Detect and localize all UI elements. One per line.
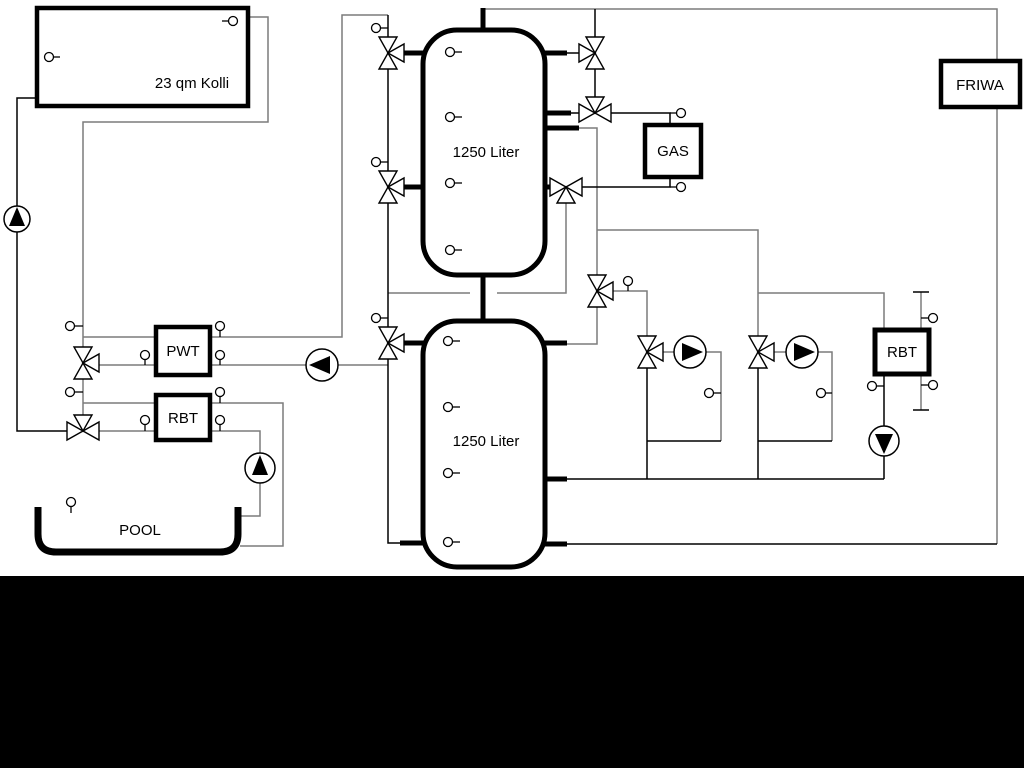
temp-sensor-pool (67, 498, 76, 514)
pipe-rbt-left-bottom-to-pump (210, 431, 260, 453)
three-way-valve-circuit1-mixer (638, 336, 663, 368)
temp-sensor-gas-supply (670, 109, 686, 118)
three-way-valve-tank1-top-right (579, 37, 604, 69)
temp-sensor-circuit2 (817, 389, 833, 398)
three-way-valve-solar-upper (74, 347, 99, 379)
three-way-valve-circuit2-mixer (749, 336, 774, 368)
rbt-left-label: RBT (168, 410, 198, 427)
temp-sensor-rbt-right-secondary-top (921, 314, 938, 323)
temp-sensor-solar-line-1 (66, 322, 84, 331)
pump-solar (4, 206, 30, 232)
temp-sensor-distribution (624, 277, 633, 292)
collector-label: 23 qm Kolli (155, 75, 229, 92)
temp-sensor-pwt-left (141, 351, 150, 366)
pipe-collector-supply-a (17, 98, 37, 206)
temp-sensor-solar-line-2 (66, 388, 84, 397)
pipe-to-rbt-right (758, 293, 884, 330)
temp-sensor-circuit1 (705, 389, 722, 398)
temp-sensor-rbt-left (141, 416, 150, 432)
bottom-black-band (0, 576, 1024, 768)
gas-label: GAS (657, 143, 689, 160)
pump-circuit2 (786, 336, 818, 368)
three-way-valve-tank1-lower-left (379, 171, 404, 203)
pwt-label: PWT (166, 343, 199, 360)
temp-sensor-pwt-right-top (216, 322, 225, 338)
temp-sensor-rbt-right-secondary-bottom (921, 381, 938, 390)
pump-rbt-right (869, 426, 899, 456)
pipe-tank1-lower-right-down (578, 128, 597, 275)
three-way-valve-distribution (588, 275, 613, 307)
three-way-valve-gas-supply (579, 97, 611, 122)
friwa-label: FRIWA (956, 77, 1004, 94)
three-way-valve-tank1-upper-left (379, 37, 404, 69)
temp-sensor-riser-1 (372, 24, 389, 33)
pool-label: POOL (119, 522, 161, 539)
hydraulic-diagram: 23 qm Kolli 1250 Liter 1250 Liter GAS FR… (0, 0, 1024, 768)
temp-sensor-rbt-right-top (216, 388, 225, 404)
pipe-collector-supply-b (17, 232, 67, 431)
pump-circuit1 (674, 336, 706, 368)
temp-sensor-riser-2 (372, 158, 389, 167)
rbt-right-label: RBT (887, 344, 917, 361)
temp-sensor-rbt-right-bottom (216, 416, 225, 432)
three-way-valve-tank2-left (379, 327, 404, 359)
pipe-v3-to-tank2 (566, 307, 597, 344)
temp-sensor-pwt-right-bottom (216, 351, 225, 366)
pump-pwt-charge (306, 349, 338, 381)
pipe-main-riser-d (388, 359, 400, 543)
schematic-canvas: 23 qm Kolli 1250 Liter 1250 Liter GAS FR… (0, 0, 1024, 768)
three-way-valve-gas-return (550, 178, 582, 203)
temp-sensor-rbt-right-primary (868, 382, 885, 391)
pipe-poolpump-to-pool (240, 483, 260, 516)
pipe-v3-branch (613, 291, 647, 336)
temp-sensor-riser-3 (372, 314, 389, 323)
tank-top-label: 1250 Liter (453, 144, 520, 161)
tank-bottom-label: 1250 Liter (453, 433, 520, 450)
pipe-upper-distribution (597, 230, 758, 336)
pump-pool (245, 453, 275, 483)
three-way-valve-solar-lower (67, 415, 99, 440)
temp-sensor-gas-return (670, 183, 686, 192)
